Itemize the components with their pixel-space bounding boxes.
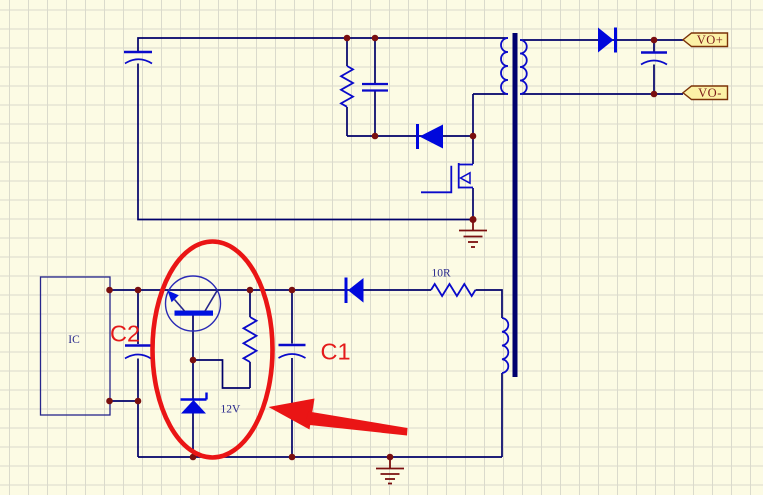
zener-12v-label: 12V [221, 404, 242, 416]
annotation-c2-label: C2 [110, 321, 140, 347]
schematic-canvas: VO+ VO- IC [0, 0, 763, 495]
ic-label: IC [68, 334, 80, 346]
transistor-base-bar [175, 311, 214, 316]
vo-minus-label: VO- [698, 86, 722, 100]
flag-vo-minus[interactable]: VO- [683, 86, 728, 100]
schematic-svg: VO+ VO- IC [0, 0, 763, 495]
flag-vo-plus[interactable]: VO+ [683, 33, 728, 47]
transformer-core [513, 33, 518, 377]
vo-plus-label: VO+ [697, 33, 724, 47]
grid-overlay [0, 0, 763, 495]
annotation-c1-label: C1 [321, 339, 351, 365]
resistor-10r-label: 10R [432, 268, 452, 280]
